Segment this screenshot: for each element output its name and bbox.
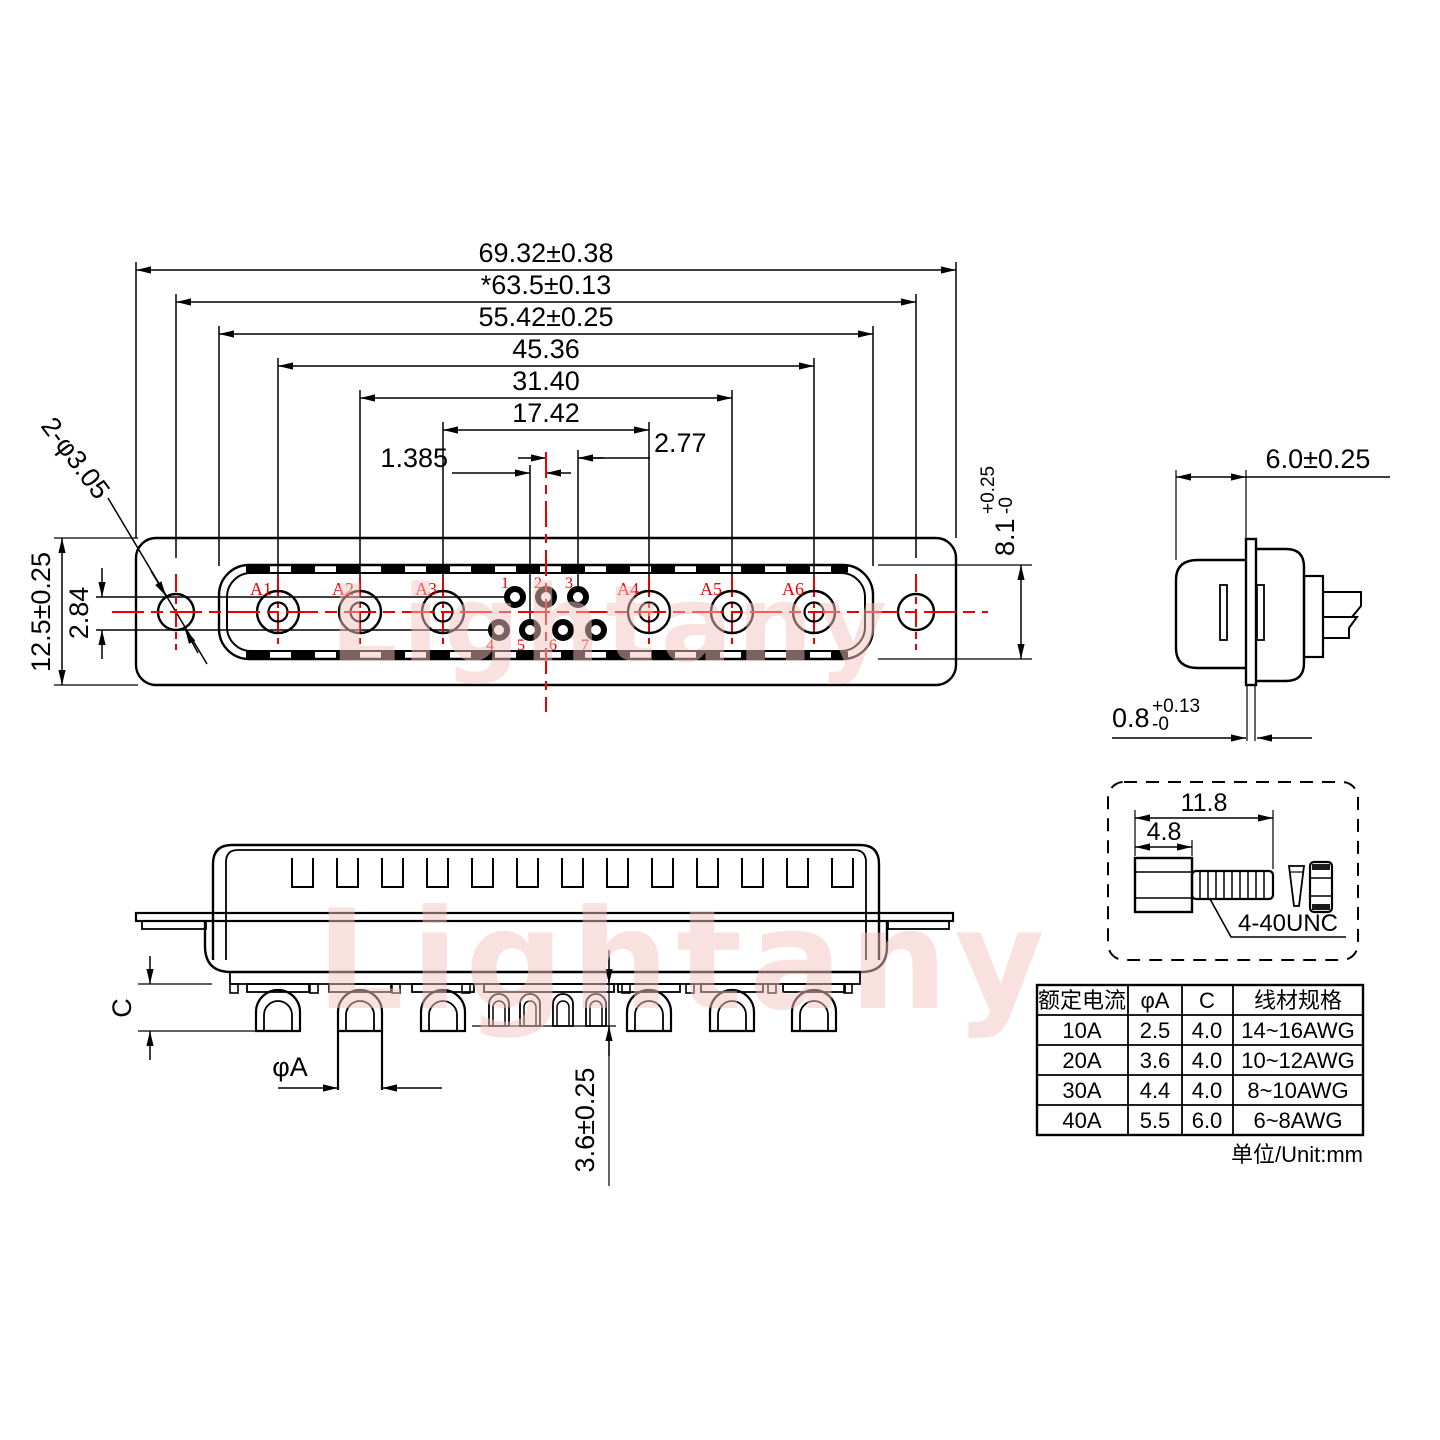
dim-text-pin-pitch: 2.77 <box>654 428 707 458</box>
thread-spec-label: 4-40UNC <box>1238 910 1338 937</box>
dim-a3-a4-span: 17.42 <box>443 398 649 430</box>
dim-text-row-spacing: 2.84 <box>64 587 94 640</box>
cell-40a-current: 40A <box>1062 1108 1101 1133</box>
dim-screw-head-length: 4.8 <box>1135 818 1192 856</box>
dim-text-mount-hole-span: *63.5±0.13 <box>481 270 611 300</box>
dim-text-a3-a4-span: 17.42 <box>512 398 580 428</box>
dim-mount-hole-span: *63.5±0.13 <box>176 270 916 302</box>
dim-flange-thickness: 0.8 +0.13 -0 <box>1112 685 1312 741</box>
dim-text-shell-width: 55.42±0.25 <box>479 302 614 332</box>
side-shell-profile <box>1176 560 1246 668</box>
side-view: 6.0±0.25 0.8 +0.13 -0 <box>1112 444 1390 741</box>
dim-text-screw-total: 11.8 <box>1181 789 1228 817</box>
cell-30a-c: 4.0 <box>1192 1078 1223 1103</box>
screw-hex-head <box>1135 858 1192 912</box>
header-c: C <box>1199 988 1215 1013</box>
cell-30a-current: 30A <box>1062 1078 1101 1103</box>
solder-cup-a1 <box>247 984 309 1031</box>
side-shell-boss-right <box>1257 585 1264 640</box>
contact-label-a1: A1 <box>250 579 272 599</box>
dim-shell-width: 55.42±0.25 <box>219 302 873 334</box>
cell-20a-c: 4.0 <box>1192 1048 1223 1073</box>
cell-10a-dia: 2.5 <box>1140 1018 1171 1043</box>
dim-text-cup-depth: C <box>107 998 137 1018</box>
dim-text-overall-width: 69.32±0.38 <box>479 238 614 268</box>
dim-pin-diameter: φA <box>272 1052 442 1088</box>
drawing-canvas: 69.32±0.38 *63.5±0.13 55.42±0.25 45.36 3… <box>0 0 1440 1440</box>
cell-10a-c: 4.0 <box>1192 1018 1223 1043</box>
spec-table-row-20a: 20A 3.6 4.0 10~12AWG <box>1062 1048 1354 1073</box>
dim-text-shell-height: 8.1 <box>990 518 1020 556</box>
dim-a1-a6-span: 45.36 <box>278 334 814 366</box>
dim-text-shell-height-minus: -0 <box>996 497 1017 514</box>
spec-table: 额定电流 φA C 线材规格 10A 2.5 4.0 14~16AWG 20A … <box>1037 985 1363 1167</box>
side-terminal-upper <box>1323 592 1361 617</box>
dim-text-flange-height: 12.5±0.25 <box>26 552 56 672</box>
spec-table-row-10a: 10A 2.5 4.0 14~16AWG <box>1062 1018 1354 1043</box>
cell-40a-awg: 6~8AWG <box>1253 1108 1342 1133</box>
watermark-bottom: Lightany <box>316 880 1052 1041</box>
dim-text-signal-cup: 3.6±0.25 <box>570 1068 600 1173</box>
side-shell-boss-left <box>1220 585 1227 640</box>
cell-30a-dia: 4.4 <box>1140 1078 1171 1103</box>
screw-thread-lines <box>1200 871 1264 899</box>
cell-40a-c: 6.0 <box>1192 1108 1223 1133</box>
header-phi-a: φA <box>1141 988 1170 1013</box>
screw-tip-front-view <box>1310 862 1332 912</box>
connector-drawing: 69.32±0.38 *63.5±0.13 55.42±0.25 45.36 3… <box>0 0 1440 1440</box>
dim-text-mounting-holes: 2-φ3.05 <box>35 412 116 505</box>
side-rear-step <box>1304 576 1323 657</box>
cell-40a-dia: 5.5 <box>1140 1108 1171 1133</box>
watermark-top: Lightany <box>330 563 892 686</box>
dim-text-a2-a5-span: 31.40 <box>512 366 580 396</box>
spec-table-header-row: 额定电流 φA C 线材规格 <box>1038 988 1342 1013</box>
cell-20a-dia: 3.6 <box>1140 1048 1171 1073</box>
cell-10a-awg: 14~16AWG <box>1241 1018 1355 1043</box>
dim-text-shell-depth: 6.0±0.25 <box>1266 444 1371 474</box>
spec-table-row-40a: 40A 5.5 6.0 6~8AWG <box>1062 1108 1342 1133</box>
dim-a2-a5-span: 31.40 <box>360 366 732 398</box>
dim-text-flange-thickness: 0.8 <box>1112 703 1150 733</box>
dim-text-flange-thickness-minus: -0 <box>1152 714 1169 735</box>
screw-tip-side-view <box>1289 866 1304 906</box>
spec-table-row-30a: 30A 4.4 4.0 8~10AWG <box>1062 1078 1348 1103</box>
unit-note: 单位/Unit:mm <box>1231 1142 1363 1167</box>
cell-10a-current: 10A <box>1062 1018 1101 1043</box>
dim-shell-depth: 6.0±0.25 <box>1176 444 1390 560</box>
cell-20a-awg: 10~12AWG <box>1241 1048 1355 1073</box>
bottom-flange-tab-left <box>142 921 206 929</box>
side-terminal-lower <box>1323 617 1357 638</box>
screw-detail: 11.8 4.8 4-40UNC <box>1108 782 1358 960</box>
dim-text-pin-diameter: φA <box>272 1052 308 1082</box>
header-wire-gauge: 线材规格 <box>1254 988 1342 1013</box>
screw-body <box>1135 858 1273 912</box>
dim-overall-width: 69.32±0.38 <box>136 238 956 270</box>
dim-text-a1-a6-span: 45.36 <box>512 334 580 364</box>
dim-text-pin-half-pitch: 1.385 <box>380 443 448 473</box>
side-flange-plate <box>1246 539 1256 685</box>
cell-30a-awg: 8~10AWG <box>1247 1078 1348 1103</box>
cell-20a-current: 20A <box>1062 1048 1101 1073</box>
dim-text-screw-head: 4.8 <box>1147 818 1182 846</box>
